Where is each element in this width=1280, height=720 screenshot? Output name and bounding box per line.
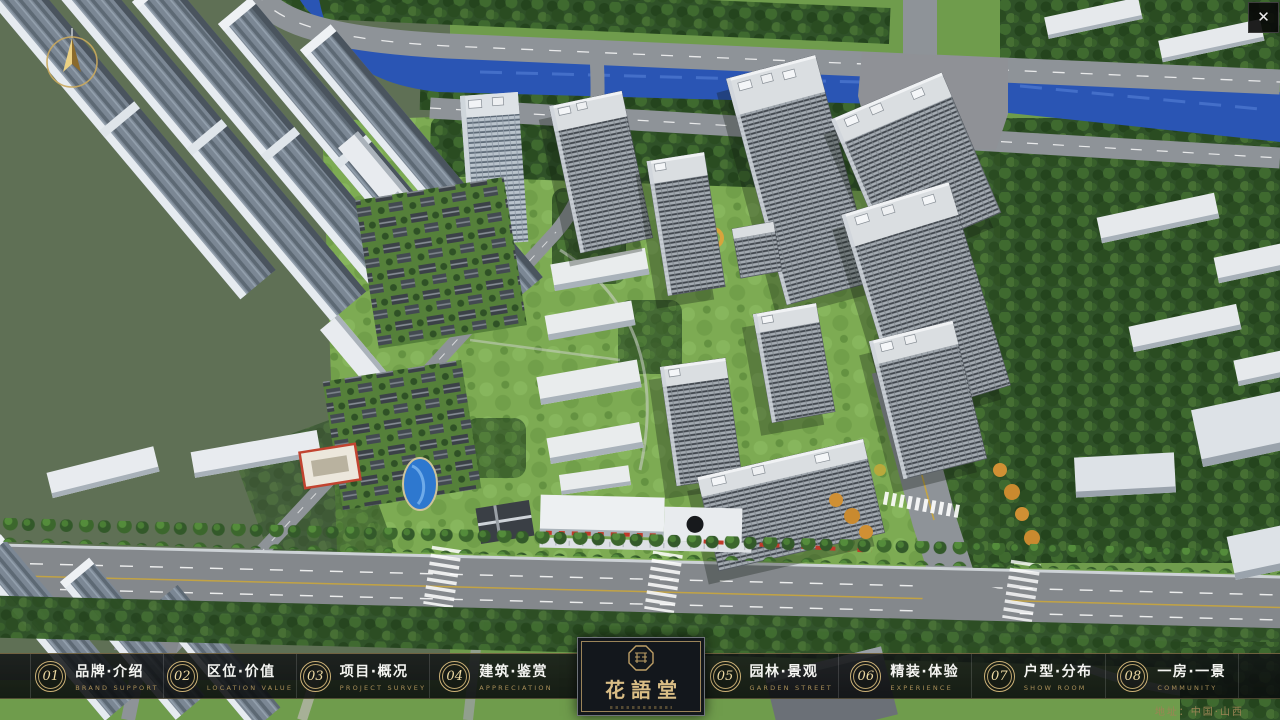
compass-icon [40, 28, 104, 92]
brand-logo-frame: 花語堂 [581, 641, 701, 712]
brand-logo: 花語堂 [577, 637, 705, 716]
nav-label-en: PROJECT SURVEY [340, 684, 427, 692]
brand-name: 花語堂 [599, 674, 683, 703]
nav-label-zh: 建筑·鉴赏 [479, 661, 548, 681]
nav-label-en: SHOW ROOM [1024, 684, 1087, 692]
masterplan-render [0, 0, 1280, 720]
nav-label-en: APPRECIATION [479, 684, 553, 692]
navbar-right-spacer [1238, 654, 1280, 698]
nav-number-badge: 07 [984, 661, 1015, 692]
close-icon: ✕ [1257, 10, 1270, 25]
nav-label-en: LOCATION VALUE [207, 684, 293, 692]
navbar-left-group: 01 品牌·介绍BRAND SUPPORT 02 区位·价值LOCATION V… [30, 654, 562, 698]
nav-item-location-value[interactable]: 02 区位·价值LOCATION VALUE [163, 654, 296, 698]
nav-number-badge: 03 [300, 661, 331, 692]
nav-label-zh: 区位·价值 [207, 661, 276, 681]
nav-number-badge: 06 [850, 661, 881, 692]
brand-seal-icon [628, 645, 654, 671]
close-button[interactable]: ✕ [1248, 2, 1279, 33]
nav-label-zh: 项目·概况 [340, 661, 409, 681]
nav-label-zh: 精装·体验 [890, 661, 959, 681]
nav-label-en: COMMUNITY [1157, 684, 1217, 692]
nav-label-zh: 户型·分布 [1024, 661, 1093, 681]
navbar-left-spacer [0, 654, 30, 698]
nav-label-zh: 园林·景观 [750, 661, 819, 681]
nav-item-floorplan-distribution[interactable]: 07 户型·分布SHOW ROOM [971, 654, 1105, 698]
brand-caption-line [610, 706, 672, 709]
nav-label-en: EXPERIENCE [890, 684, 953, 692]
navbar-right-group: 05 园林·景观GARDEN STREET 06 精装·体验EXPERIENCE… [704, 654, 1238, 698]
nav-label-zh: 品牌·介绍 [75, 661, 144, 681]
nav-item-interior-experience[interactable]: 06 精装·体验EXPERIENCE [838, 654, 972, 698]
nav-item-brand-intro[interactable]: 01 品牌·介绍BRAND SUPPORT [30, 654, 163, 698]
nav-item-architecture[interactable]: 04 建筑·鉴赏APPRECIATION [429, 654, 562, 698]
nav-item-room-view[interactable]: 08 一房·一景COMMUNITY [1105, 654, 1239, 698]
nav-number-badge: 05 [710, 661, 741, 692]
sandtable-app-window: ✕ 01 品牌·介绍BRAND SUPPORT 02 区位·价值LOCATION… [0, 0, 1280, 720]
address-text: 地址：中国·山西 [1155, 703, 1244, 718]
nav-number-badge: 02 [167, 661, 198, 692]
nav-number-badge: 08 [1117, 661, 1148, 692]
nav-item-landscape[interactable]: 05 园林·景观GARDEN STREET [704, 654, 838, 698]
nav-label-en: BRAND SUPPORT [75, 684, 159, 692]
nav-label-zh: 一房·一景 [1157, 661, 1226, 681]
nav-label-en: GARDEN STREET [750, 684, 833, 692]
nav-item-project-overview[interactable]: 03 项目·概况PROJECT SURVEY [296, 654, 429, 698]
nav-number-badge: 04 [439, 661, 470, 692]
nav-number-badge: 01 [35, 661, 66, 692]
